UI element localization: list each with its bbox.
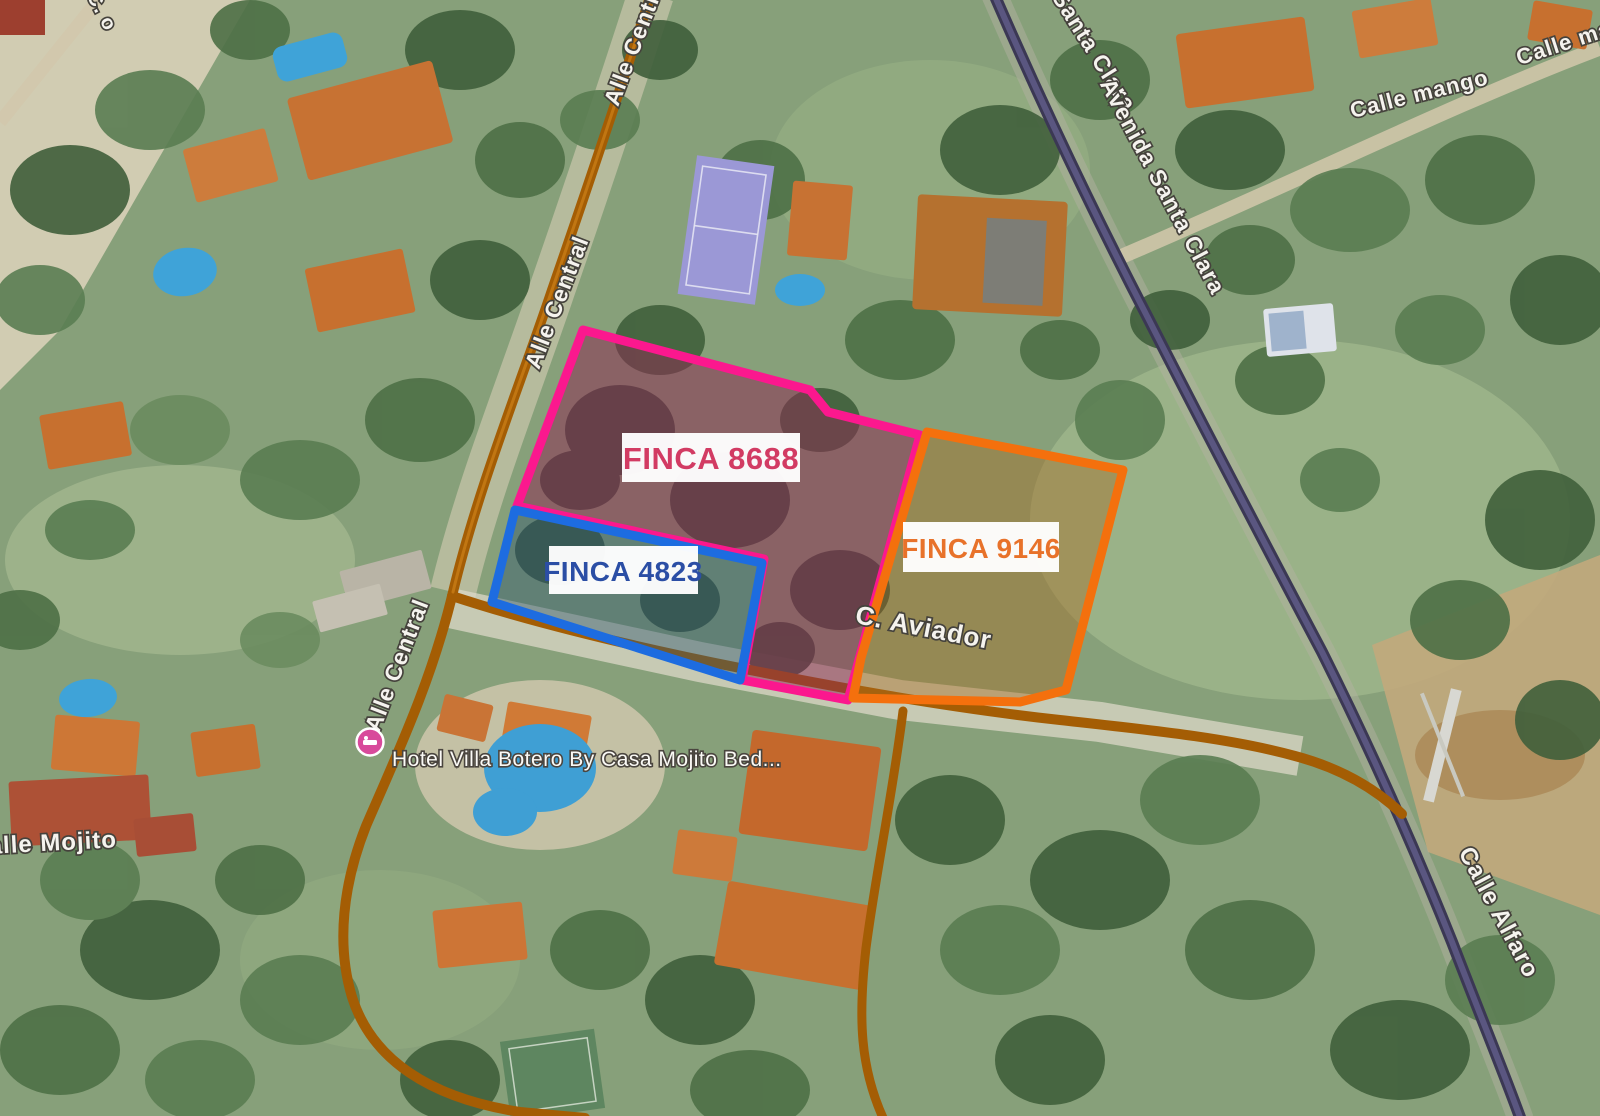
map-viewport[interactable]: C. o Alle Central Alle Central Alle Cent… [0,0,1600,1116]
hotel-label: Hotel Villa Botero By Casa Mojito Bed... [392,748,782,771]
badge-finca-9146[interactable]: FINCA 9146 [901,522,1061,572]
tennis-court-south [500,1029,605,1116]
badge-finca-4823[interactable]: FINCA 4823 [543,546,703,594]
badge-finca-8688[interactable]: FINCA 8688 [622,433,800,482]
svg-text:FINCA 8688: FINCA 8688 [623,441,799,476]
svg-text:FINCA 4823: FINCA 4823 [543,556,703,587]
satellite-map[interactable]: C. o Alle Central Alle Central Alle Cent… [0,0,1600,1116]
svg-text:FINCA 9146: FINCA 9146 [901,533,1061,564]
